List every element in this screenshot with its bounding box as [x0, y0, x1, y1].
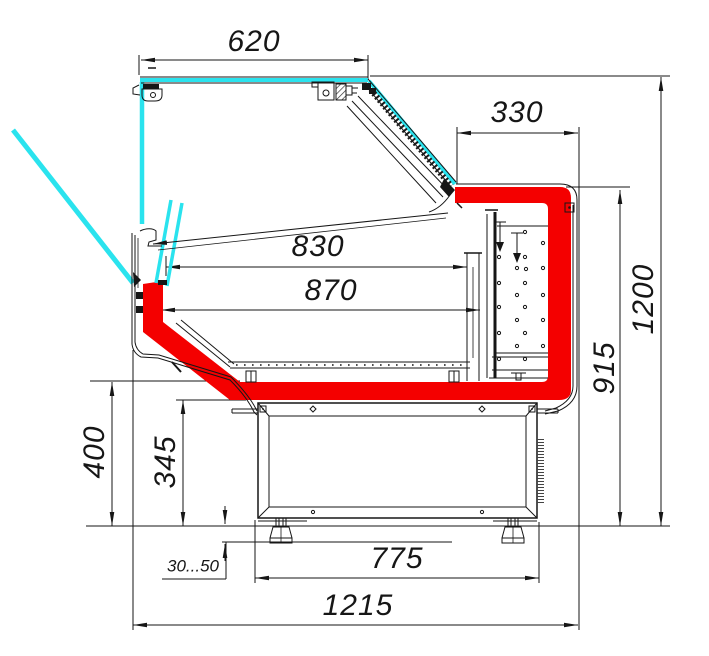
- adjustable-foot-left: [270, 518, 292, 543]
- technical-drawing-page: 620 330 830 870 1200 915 400 345 30...50…: [0, 0, 709, 656]
- dim-base-depth: 775: [370, 544, 423, 574]
- dim-display-opening-depth: 830: [291, 232, 344, 262]
- dim-back-counter-depth: 330: [490, 98, 543, 128]
- dim-base-height: 345: [151, 435, 181, 488]
- canopy-hinge-right: [312, 82, 334, 100]
- dim-overall-height: 1200: [629, 264, 659, 335]
- canopy-hinge-left: [143, 84, 159, 89]
- dim-overall-depth: 1215: [323, 591, 394, 621]
- front-glass-open-position: [13, 130, 133, 283]
- roof-glass-gasket: [371, 90, 451, 186]
- adjustable-foot-right: [502, 518, 524, 543]
- base-cabinet: [232, 403, 558, 521]
- dim-counter-height: 915: [590, 341, 620, 394]
- perforated-panel: [497, 230, 544, 360]
- dim-display-well-depth: 870: [304, 276, 357, 306]
- dim-leg-adjust-range: 30...50: [167, 558, 219, 575]
- dim-canopy-width: 620: [227, 27, 280, 57]
- drawing-canvas: [0, 0, 709, 656]
- dim-front-panel-height: 400: [80, 425, 110, 478]
